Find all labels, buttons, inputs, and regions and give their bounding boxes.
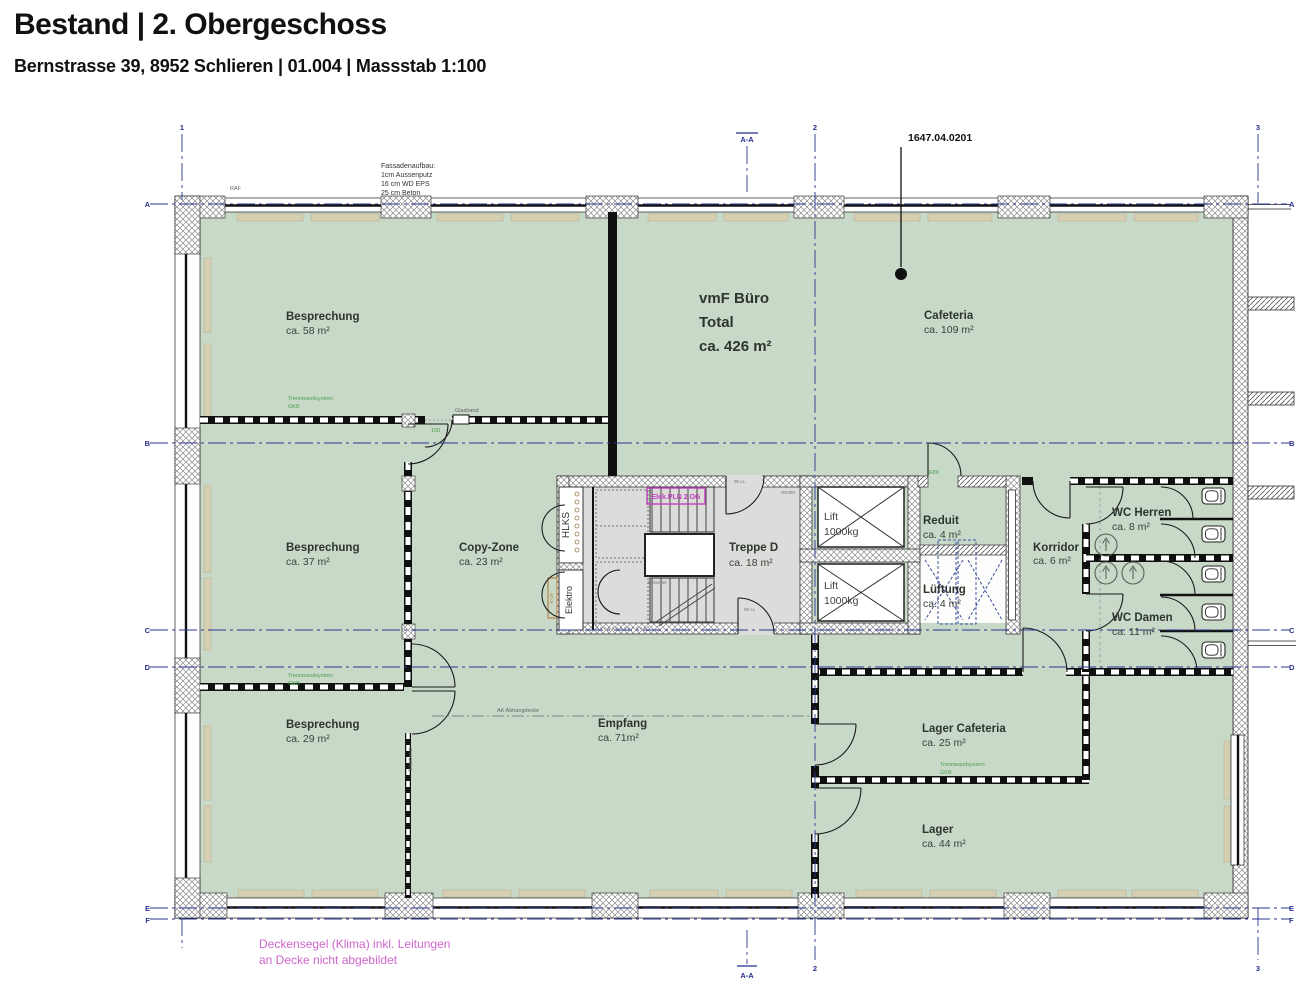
elek-pln-label: Elek.PLN 2.OG bbox=[651, 494, 701, 501]
e80-label: E80 bbox=[929, 470, 939, 476]
room-name: Total bbox=[699, 314, 734, 331]
dim-100-label: 100 bbox=[431, 428, 440, 434]
room-area: ca. 58 m² bbox=[286, 325, 330, 337]
room-area: ca. 23 m² bbox=[459, 556, 503, 568]
drawing-number: 1647.04.0201 bbox=[908, 132, 972, 144]
section-mark-top: A-A bbox=[740, 135, 754, 144]
abhangdecke-label: AK Abhangdecke bbox=[497, 708, 539, 714]
room-area: ca. 11 m² bbox=[1112, 626, 1155, 638]
room-area: ca. 44 m² bbox=[922, 838, 966, 850]
grid-label-row-e-left: E bbox=[145, 904, 150, 913]
facade-fin bbox=[1248, 297, 1294, 310]
re360-label: RE360 bbox=[781, 490, 795, 495]
glasband-label: Glasband bbox=[455, 408, 479, 414]
facade-fin bbox=[1248, 392, 1294, 405]
trennwand-note-1a: Trennwandsystem bbox=[288, 396, 333, 402]
trennwand-note-3a: Trennwandsystem bbox=[940, 762, 985, 768]
toilet-icon bbox=[1202, 642, 1225, 658]
gelaender-label: Geländer bbox=[648, 580, 667, 585]
grid-label-row-b-left: B bbox=[145, 439, 151, 448]
raf-label: RAF bbox=[230, 186, 242, 192]
room-area: ca. 18 m² bbox=[729, 557, 773, 569]
grid-label-row-b-right: B bbox=[1289, 439, 1295, 448]
grid-label-col-2-top: 2 bbox=[813, 123, 817, 132]
grid-label-row-f-left: F bbox=[145, 916, 150, 925]
room-name: Besprechung bbox=[286, 542, 360, 554]
room-name: Besprechung bbox=[286, 311, 360, 323]
room-area: ca. 4 m² bbox=[923, 529, 961, 541]
grid-label-row-f-right: F bbox=[1289, 916, 1294, 925]
trennwand-note-2a: Trennwandsystem bbox=[288, 673, 333, 679]
room-name: Lager bbox=[922, 824, 954, 836]
toilet-icon bbox=[1202, 488, 1225, 504]
room-area: ca. 6 m² bbox=[1033, 555, 1071, 567]
toilet-icon bbox=[1202, 526, 1225, 542]
room-area: ca. 71m² bbox=[598, 732, 639, 744]
door-size-bottom: 90 LL bbox=[744, 607, 756, 612]
floorplan-drawing: HLKS Elektro E-UV bbox=[0, 0, 1296, 990]
room-name: Empfang bbox=[598, 718, 647, 730]
room-name: Copy-Zone bbox=[459, 542, 519, 554]
room-area: ca. 109 m² bbox=[924, 324, 974, 336]
grid-label-row-e-right: E bbox=[1289, 904, 1294, 913]
room-area: ca. 29 m² bbox=[286, 733, 330, 745]
ceiling-note-2: an Decke nicht abgebildet bbox=[259, 953, 398, 967]
grid-label-col-2-bottom: 2 bbox=[813, 964, 817, 973]
trennwand-note-1b: GKB bbox=[288, 404, 300, 410]
room-name: vmF Büro bbox=[699, 290, 769, 307]
room-area: ca. 426 m² bbox=[699, 338, 772, 355]
grid-label-col-3-top: 3 bbox=[1256, 123, 1260, 132]
door-size-top: 90 LL bbox=[734, 479, 746, 484]
room-name: Cafeteria bbox=[924, 310, 974, 322]
floorplan-page: Bestand | 2. Obergeschoss Bernstrasse 39… bbox=[0, 0, 1296, 990]
toilet-icon bbox=[1202, 566, 1225, 582]
lift1-capacity: 1000kg bbox=[824, 526, 859, 538]
shaft-label-elektro: Elektro bbox=[564, 586, 574, 614]
facade-note-3: 16 cm WD EPS bbox=[381, 181, 430, 188]
grid-label-row-d-right: D bbox=[1289, 663, 1295, 672]
trennwand-note-3b: GKB bbox=[940, 770, 952, 776]
facade-note-1: Fassadenaufbau: bbox=[381, 163, 435, 170]
room-name: Korridor bbox=[1033, 542, 1080, 554]
lift2-name: Lift bbox=[824, 580, 838, 592]
elevators: Lift 1000kg Lift 1000kg bbox=[800, 476, 920, 634]
room-area: ca. 4 m² bbox=[923, 598, 961, 610]
room-area: ca. 37 m² bbox=[286, 556, 330, 568]
lift1-name: Lift bbox=[824, 511, 838, 523]
room-name: Reduit bbox=[923, 515, 959, 527]
room-name: Lager Cafeteria bbox=[922, 723, 1006, 735]
trennwand-note-2b: GKB bbox=[288, 681, 300, 687]
room-name: Lüftung bbox=[923, 584, 966, 596]
grid-label-col-3-bottom: 3 bbox=[1256, 964, 1260, 973]
grid-label-row-a-right: A bbox=[1289, 200, 1295, 209]
room-name: WC Damen bbox=[1112, 612, 1173, 624]
facade-fin bbox=[1248, 486, 1294, 499]
shaft-label-euv: E-UV bbox=[549, 592, 554, 604]
grid-label-row-d-left: D bbox=[145, 663, 151, 672]
toilet-icon bbox=[1202, 604, 1225, 620]
room-area: ca. 8 m² bbox=[1112, 521, 1150, 533]
section-mark-bottom: A-A bbox=[740, 971, 754, 980]
facade-note-2: 1cm Aussenputz bbox=[381, 172, 433, 179]
grid-label-row-c-left: C bbox=[145, 626, 151, 635]
grid-label-row-a-left: A bbox=[145, 200, 151, 209]
glaswand-label: Glasband bbox=[408, 748, 414, 772]
shaft-label-hlks: HLKS bbox=[561, 512, 572, 538]
facade-note-4: 25 cm Beton bbox=[381, 190, 420, 197]
grid-label-row-c-right: C bbox=[1289, 626, 1295, 635]
room-name: WC Herren bbox=[1112, 507, 1171, 519]
room-name: Treppe D bbox=[729, 542, 778, 554]
ceiling-note-1: Deckensegel (Klima) inkl. Leitungen bbox=[259, 937, 450, 951]
room-name: Besprechung bbox=[286, 719, 360, 731]
room-area: ca. 25 m² bbox=[922, 737, 966, 749]
lift2-capacity: 1000kg bbox=[824, 595, 859, 607]
grid-label-col-1: 1 bbox=[180, 123, 184, 132]
